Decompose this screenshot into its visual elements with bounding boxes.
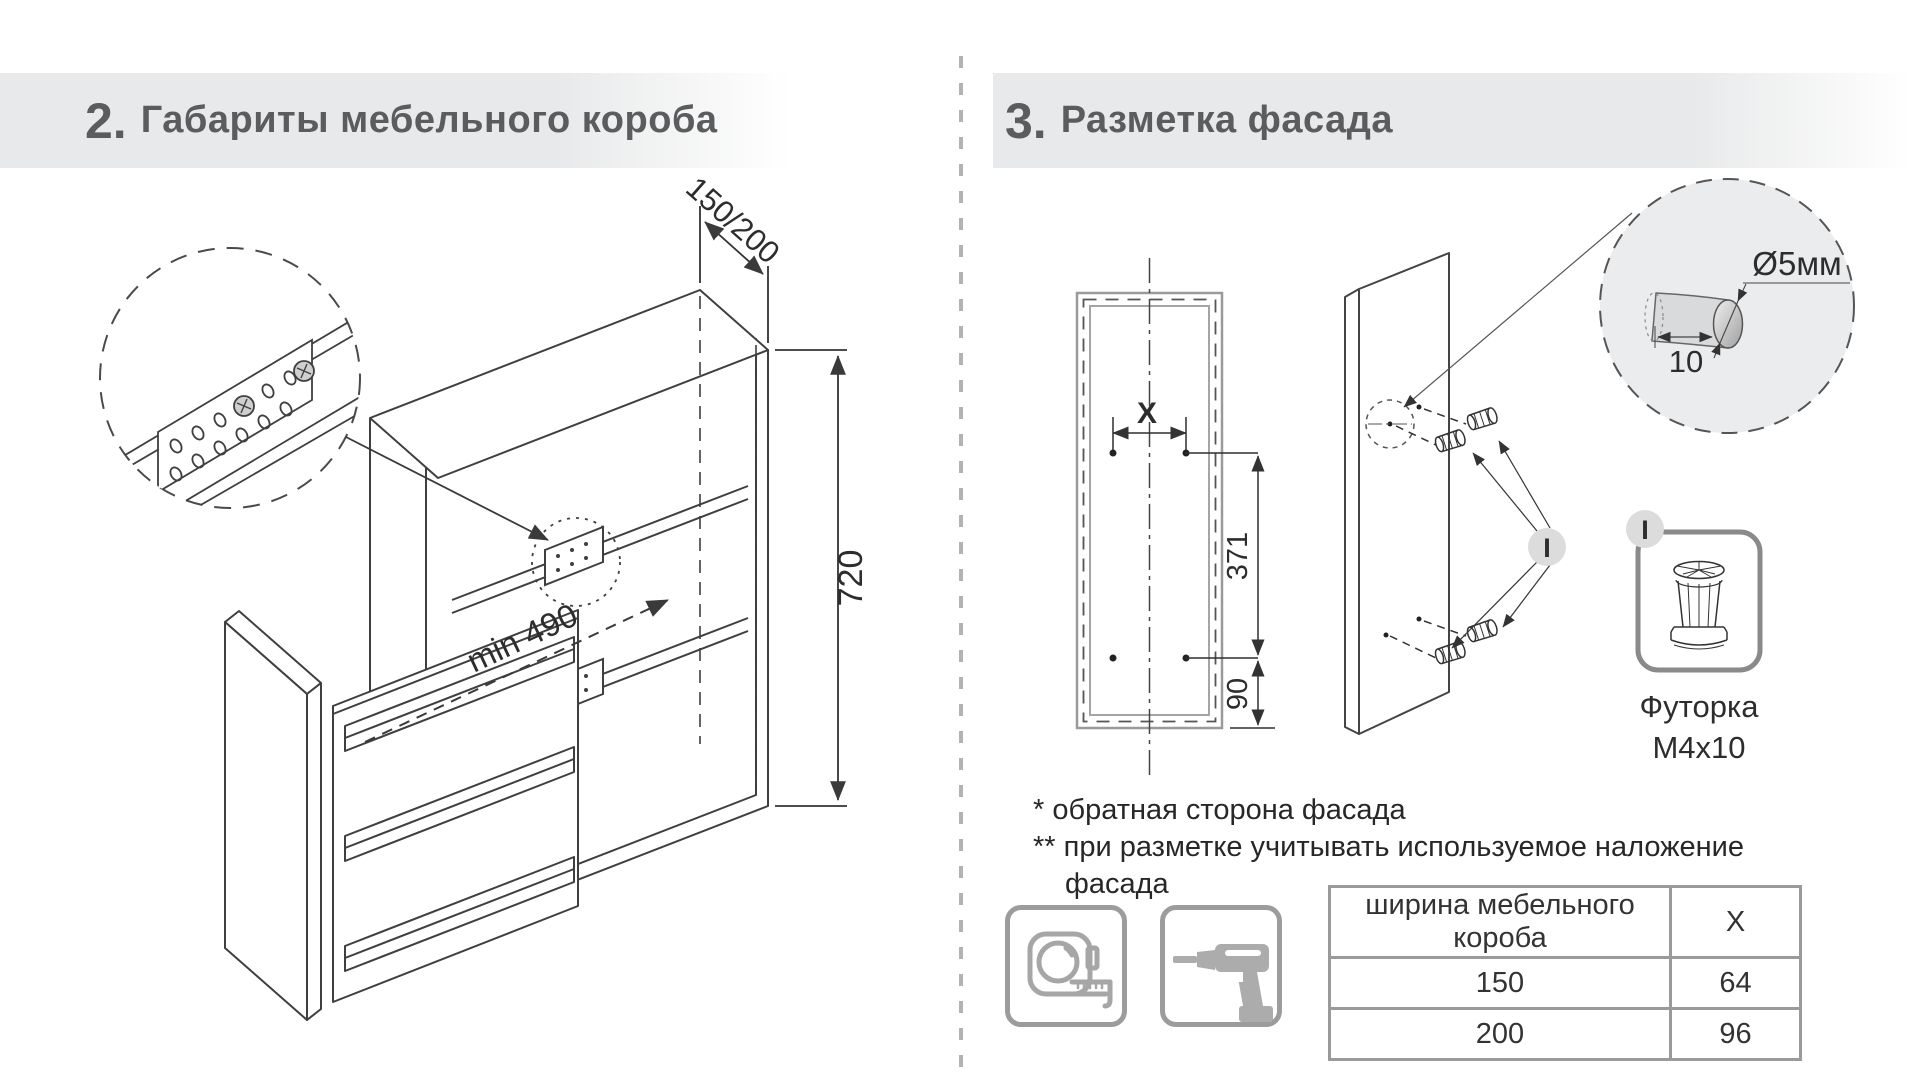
footnote-2: ** при разметке учитывать используемое н…: [1033, 829, 1744, 866]
part-size: M4x10: [1652, 730, 1745, 765]
x-dim-label: X: [1137, 397, 1157, 430]
tape-measure-icon: [1010, 910, 1122, 1022]
pullout-unit: [225, 610, 578, 1020]
facade-panel-view: I: [1345, 213, 1632, 734]
footnote-1: * обратная сторона фасада: [1033, 792, 1744, 829]
section-2-title: Габариты мебельного короба: [141, 99, 718, 142]
drill-tool-box: [1160, 905, 1282, 1027]
table-cell-width-150: 150: [1330, 958, 1671, 1009]
x-parameter-table: ширина мебельного короба X 150 64 200 96: [1328, 885, 1802, 1061]
section-2-number: 2.: [85, 92, 127, 150]
table-row: 200 96: [1330, 1009, 1801, 1060]
table-header-x: X: [1671, 887, 1801, 958]
dim-90-label: 90: [1222, 678, 1254, 710]
futorka-legend: I Футорка M4x10: [1626, 510, 1760, 765]
callout-label: I: [1543, 533, 1551, 563]
dim-371-label: 371: [1222, 532, 1254, 580]
legend-callout-label: I: [1641, 515, 1649, 545]
table-cell-x-64: 64: [1671, 958, 1801, 1009]
height-dimension: 720: [775, 350, 870, 806]
hole-detail-circle: Ø5мм 10: [1600, 179, 1854, 433]
section-3-number: 3.: [1005, 92, 1047, 150]
drill-icon: [1165, 910, 1277, 1022]
height-dim-label: 720: [832, 550, 870, 607]
hole-diameter-label: Ø5мм: [1752, 245, 1841, 282]
tape-measure-tool-box: [1005, 905, 1127, 1027]
door-panel: [225, 611, 321, 1020]
facade-rear-view: X 371 90: [1077, 258, 1275, 778]
facade-marking-drawing: X 371 90: [960, 150, 1922, 810]
width-dim-label: 150/200: [679, 170, 786, 270]
insert-callout: I: [1452, 441, 1566, 648]
dim-90: 90: [1222, 661, 1275, 728]
part-name: Футорка: [1640, 689, 1760, 724]
hole-depth-label: 10: [1669, 344, 1703, 379]
table-cell-x-96: 96: [1671, 1009, 1801, 1060]
cabinet-drawing: min 490 150/200 720: [0, 150, 960, 1082]
table-row: 150 64: [1330, 958, 1801, 1009]
table-header-width: ширина мебельного короба: [1330, 887, 1671, 958]
section-3-title: Разметка фасада: [1061, 99, 1393, 142]
table-header-row: ширина мебельного короба X: [1330, 887, 1801, 958]
instruction-page: 2. Габариты мебельного короба 3. Разметк…: [0, 0, 1922, 1082]
table-cell-width-200: 200: [1330, 1009, 1671, 1060]
